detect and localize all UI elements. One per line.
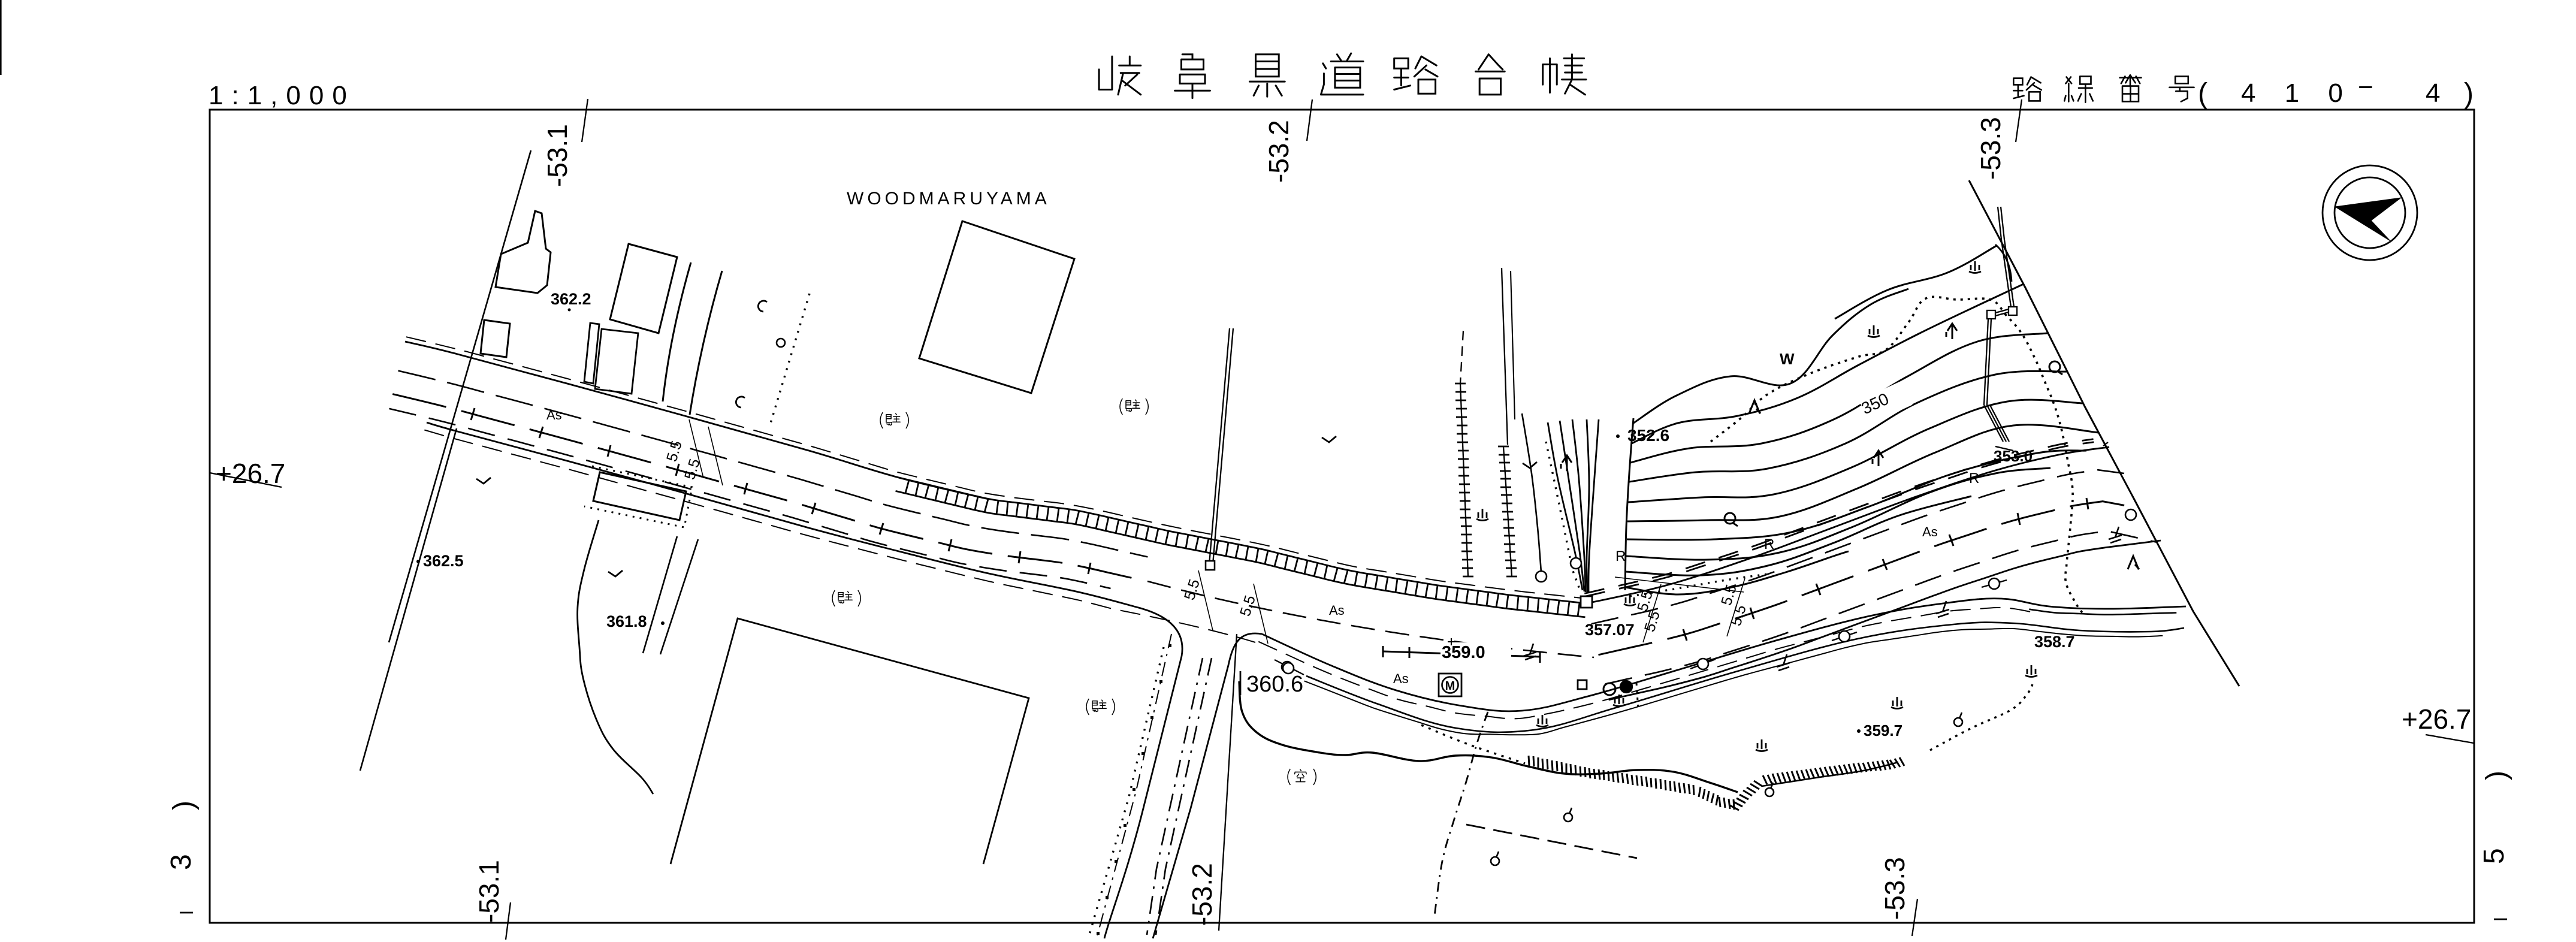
svg-text:R: R — [1969, 470, 1979, 487]
svg-text:-53.2: -53.2 — [1263, 120, 1294, 183]
svg-text:M: M — [1445, 680, 1455, 693]
svg-text:W: W — [1780, 350, 1795, 368]
svg-text:−: − — [2358, 73, 2373, 102]
svg-text:-53.3: -53.3 — [1975, 117, 2006, 180]
svg-text:-53.3: -53.3 — [1879, 857, 1910, 920]
svg-text:As: As — [1329, 603, 1345, 618]
svg-text:-53.1: -53.1 — [542, 124, 573, 187]
svg-text:358.7: 358.7 — [2034, 633, 2075, 651]
svg-text:(: ( — [2198, 78, 2207, 110]
svg-text:3: 3 — [165, 854, 197, 870]
svg-text:353.0: 353.0 — [1994, 447, 2033, 465]
svg-text:): ) — [168, 801, 200, 810]
svg-text:352.6: 352.6 — [1627, 426, 1669, 445]
svg-text:WOODMARUYAMA: WOODMARUYAMA — [847, 189, 1050, 209]
svg-text:362.5: 362.5 — [423, 552, 464, 570]
svg-text:5: 5 — [2478, 848, 2510, 864]
svg-text:+26.7: +26.7 — [2402, 704, 2471, 735]
svg-text:359.0: 359.0 — [1442, 643, 1485, 662]
svg-text:1:1,000: 1:1,000 — [209, 81, 355, 110]
svg-text:4: 4 — [2426, 78, 2440, 108]
svg-text:R: R — [1764, 536, 1774, 552]
svg-text:+26.7: +26.7 — [216, 458, 285, 489]
svg-text:): ) — [2481, 771, 2512, 780]
svg-text:R: R — [1615, 548, 1626, 564]
svg-text:): ) — [2464, 78, 2474, 110]
svg-text:-53.1: -53.1 — [473, 860, 505, 923]
svg-text:357.07: 357.07 — [1585, 621, 1635, 639]
svg-text:361.8: 361.8 — [606, 612, 647, 630]
svg-text:As: As — [546, 407, 562, 422]
svg-text:359.7: 359.7 — [1864, 721, 1902, 739]
svg-text:As: As — [1922, 524, 1938, 539]
svg-text:-53.2: -53.2 — [1186, 863, 1218, 926]
svg-text:362.2: 362.2 — [551, 290, 591, 308]
svg-text:4 1 0: 4 1 0 — [2241, 78, 2354, 108]
svg-text:360.6: 360.6 — [1246, 672, 1303, 697]
svg-text:As: As — [1393, 671, 1409, 686]
